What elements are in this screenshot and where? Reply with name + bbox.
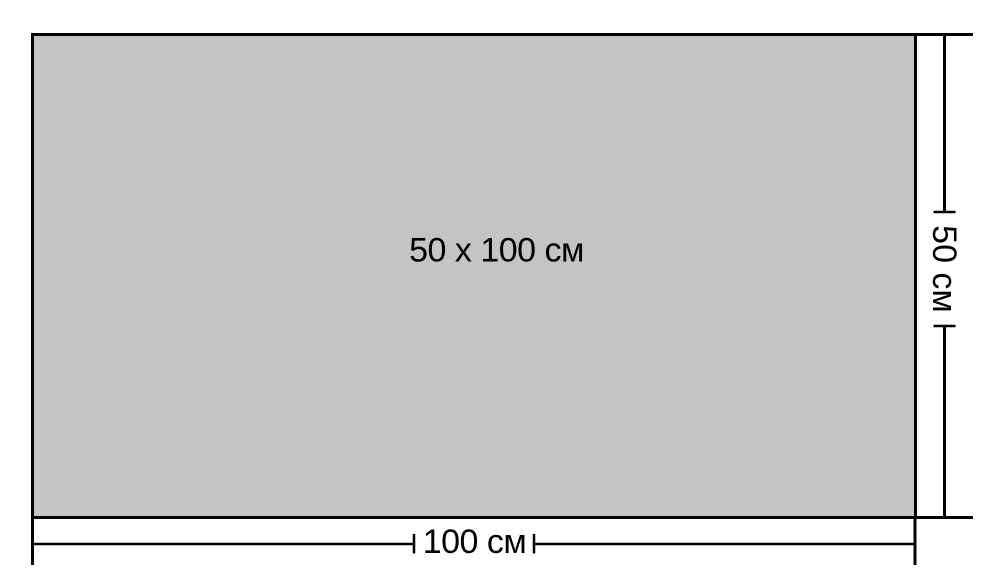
svg-text:100 см: 100 см (423, 523, 527, 561)
svg-text:50 x 100 см: 50 x 100 см (409, 232, 584, 270)
svg-text:50 см: 50 см (925, 225, 963, 313)
